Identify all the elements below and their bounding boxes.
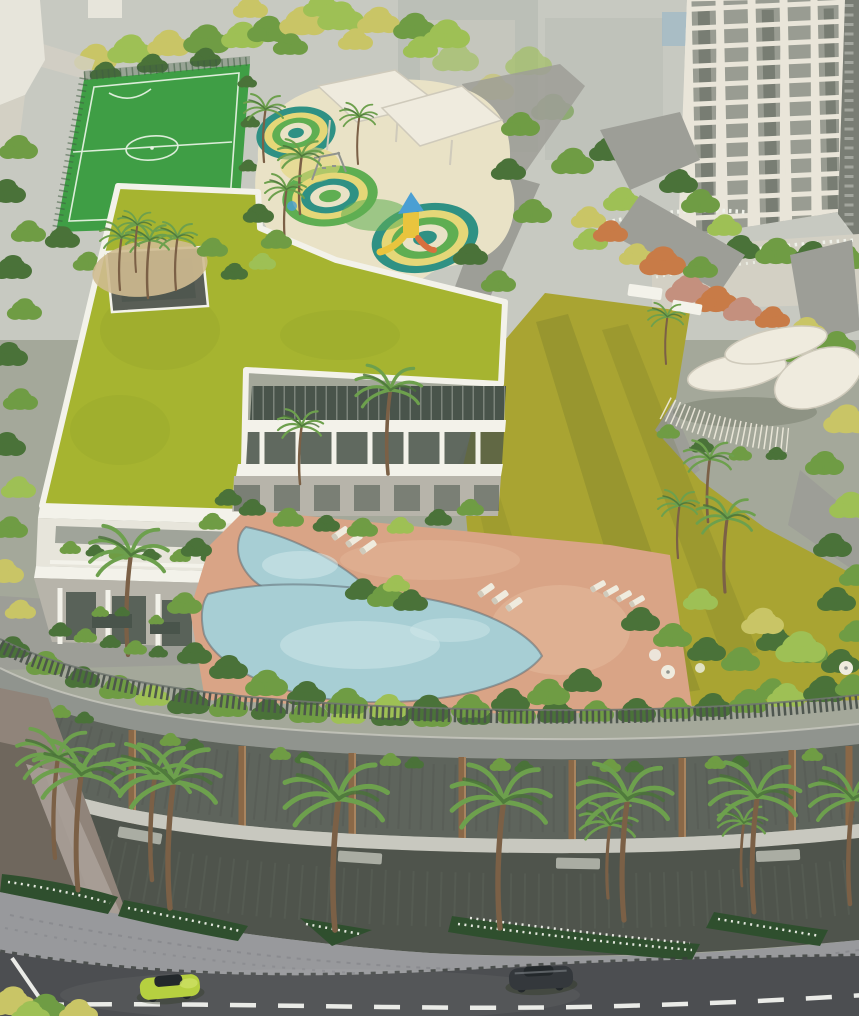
masterplan-rendering [0, 0, 859, 1016]
white-flower-bush [695, 663, 705, 673]
wing-recess [246, 432, 504, 464]
roof-shading [280, 310, 400, 360]
roof-shading [70, 395, 170, 465]
wing-lower-slab [236, 464, 503, 476]
center-spot [150, 146, 154, 150]
ring-connector [341, 199, 409, 231]
sign-board [556, 858, 600, 870]
sign-board [756, 849, 801, 862]
outdoor-table [661, 665, 675, 679]
white-flower-bush [649, 649, 661, 661]
splash-pad [287, 201, 297, 211]
rooftop-box [88, 0, 122, 18]
rendering-stage [0, 0, 859, 1016]
tree [303, 0, 342, 17]
outdoor-table [839, 661, 853, 675]
